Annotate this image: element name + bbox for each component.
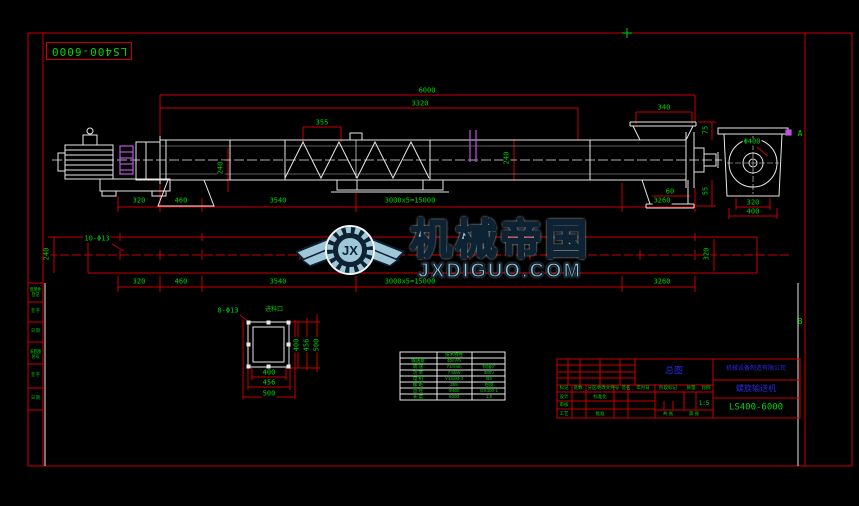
title-block-product: 螺旋输送机 xyxy=(735,385,777,393)
tech-r5-c3: 右旋 xyxy=(484,383,495,388)
dim-row1-3540: 3540 xyxy=(269,198,288,205)
sheet-code-label: LS400-6000 xyxy=(51,45,127,58)
dim-row1-pitch-run: 3000x5=15000 xyxy=(384,198,437,205)
label-design: 设计 xyxy=(559,395,570,400)
dim-row1-320: 320 xyxy=(132,198,147,205)
tech-r6-c2: Φ400 xyxy=(447,389,460,394)
tech-r0-c2: 技术特性 xyxy=(444,353,464,358)
zone-letter-b: B xyxy=(797,318,804,326)
tech-r4-c1: 电 机 xyxy=(412,377,424,382)
inlet-vdim-500: 500 xyxy=(314,338,321,353)
tech-r4-c2: Y132M-4 xyxy=(444,377,464,382)
tech-r2-c1: 转 速 xyxy=(412,365,424,370)
label-weight: 质量 xyxy=(686,386,697,391)
tech-r2-c3: 倾角0° xyxy=(481,365,496,370)
label-sign: 签名 xyxy=(621,386,632,391)
watermark-site: JXDIGUO.COM xyxy=(418,261,582,281)
label-change-doc: 更改文件号 xyxy=(596,386,621,391)
title-block-company: 机械设备制造有限公司 xyxy=(725,366,787,372)
tech-r7-c3: 1:5 xyxy=(485,395,493,400)
plan-dim-320: 320 xyxy=(704,247,711,262)
strip-sign-2: 签 字 xyxy=(29,373,42,378)
tech-r5-c1: 螺 距 xyxy=(412,383,424,388)
inlet-vdim-456: 456 xyxy=(304,338,311,353)
dim-240-left: 240 xyxy=(218,161,225,176)
inlet-dim-456: 456 xyxy=(262,380,277,387)
label-qty: 处数 xyxy=(573,386,584,391)
inlet-holes-label: 8-Φ13 xyxy=(216,308,239,315)
dim-75: 75 xyxy=(703,125,710,135)
title-block-doc-title: 总图 xyxy=(664,367,684,376)
label-standard: 标准化 xyxy=(592,395,608,400)
label-mark: 标记 xyxy=(559,386,570,391)
dim-row2-3260: 3260 xyxy=(653,279,672,286)
label-process: 工艺 xyxy=(559,412,570,417)
label-approve: 批准 xyxy=(595,412,606,417)
plan-holes-label: 10-Φ13 xyxy=(83,236,110,243)
label-sheets: 共 张 xyxy=(662,412,674,417)
label-ratio: 比例 xyxy=(701,386,712,391)
tech-r3-c1: 功 率 xyxy=(412,371,424,376)
strip-date-1: 日 期 xyxy=(29,329,42,334)
dim-row1-460: 460 xyxy=(174,198,189,205)
tech-r7-c1: 长 度 xyxy=(412,395,424,400)
inlet-dim-400: 400 xyxy=(262,370,277,377)
watermark-logo: JX xyxy=(296,210,404,290)
cad-drawing-sheet: LS400-6000 A B 6000 3320 340 355 240 240… xyxy=(0,0,859,506)
dim-dia-400: Φ400 xyxy=(743,139,762,146)
inlet-title: 进料口 xyxy=(264,307,284,313)
dim-end-400: 400 xyxy=(746,209,761,216)
label-sheet-no: 第 张 xyxy=(688,412,700,417)
dim-60: 60 xyxy=(665,189,675,196)
inlet-vdim-400: 400 xyxy=(294,338,301,353)
title-block-drawing-no: LS400-6000 xyxy=(728,404,784,413)
tech-r3-c3: 380V xyxy=(483,371,496,376)
tech-r3-c2: 7.5kW xyxy=(447,371,462,376)
watermark-initials: JX xyxy=(342,243,358,258)
watermark-brand: 机械帝国 xyxy=(410,219,590,261)
tech-r4-c3: B3 xyxy=(485,377,493,382)
watermark: JX 机械帝国 JXDIGUO.COM xyxy=(296,210,590,290)
dim-240-mid: 240 xyxy=(504,151,511,166)
tech-r5-c2: 355 xyxy=(449,383,459,388)
label-check: 审核 xyxy=(559,403,570,408)
tech-r6-c3: GX400-1 xyxy=(479,389,499,394)
dim-3320: 3320 xyxy=(411,101,430,108)
scale-value: 1:5 xyxy=(698,401,711,407)
tech-r1-c1: 输送量 xyxy=(410,359,426,364)
sheet-code-box: LS400-6000 xyxy=(46,42,132,60)
strip-borrow-record: 借用件登记 xyxy=(29,288,42,297)
tech-r6-c1: 直 径 xyxy=(412,389,424,394)
dim-row1-3260: 3260 xyxy=(653,198,672,205)
dim-row2-3540: 3540 xyxy=(269,279,288,286)
zone-letter-a: A xyxy=(797,130,804,138)
inlet-dim-500: 500 xyxy=(262,391,277,398)
label-stage: 阶段标记 xyxy=(658,386,678,391)
tech-r7-c2: 6000 xyxy=(448,395,460,400)
plan-dim-240: 240 xyxy=(44,247,51,262)
dim-end-320: 320 xyxy=(746,200,761,207)
dim-55: 55 xyxy=(703,186,710,196)
dim-row2-460: 460 xyxy=(174,279,189,286)
strip-old-tracing-no: 旧底图总号 xyxy=(29,350,42,359)
strip-sign-1: 签 字 xyxy=(29,309,42,314)
dim-pitch-355: 355 xyxy=(315,120,330,127)
label-date: 年月日 xyxy=(635,386,651,391)
tech-r1-c2: 40m³/h xyxy=(446,359,462,364)
dim-340: 340 xyxy=(657,105,672,112)
tech-r2-c2: 71r/min xyxy=(445,365,462,370)
dim-total-length: 6000 xyxy=(418,88,437,95)
dim-row2-320: 320 xyxy=(132,279,147,286)
strip-date-2: 日 期 xyxy=(29,396,42,401)
